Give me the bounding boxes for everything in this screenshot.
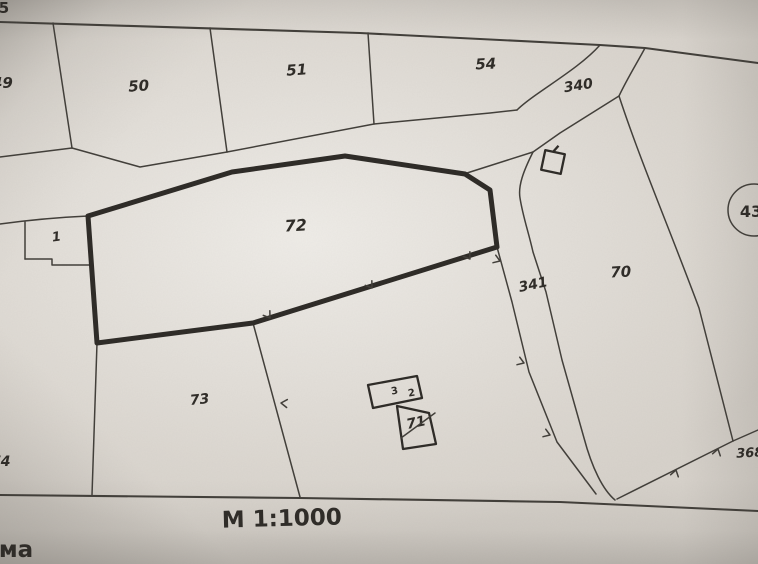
cadastral-map: 5 49 50 51 54 340 43 1 72 341 70 73 74 3… (0, 0, 758, 564)
paper-grain-texture (0, 0, 758, 564)
cadastral-map-photo: 5 49 50 51 54 340 43 1 72 341 70 73 74 3… (0, 0, 758, 564)
